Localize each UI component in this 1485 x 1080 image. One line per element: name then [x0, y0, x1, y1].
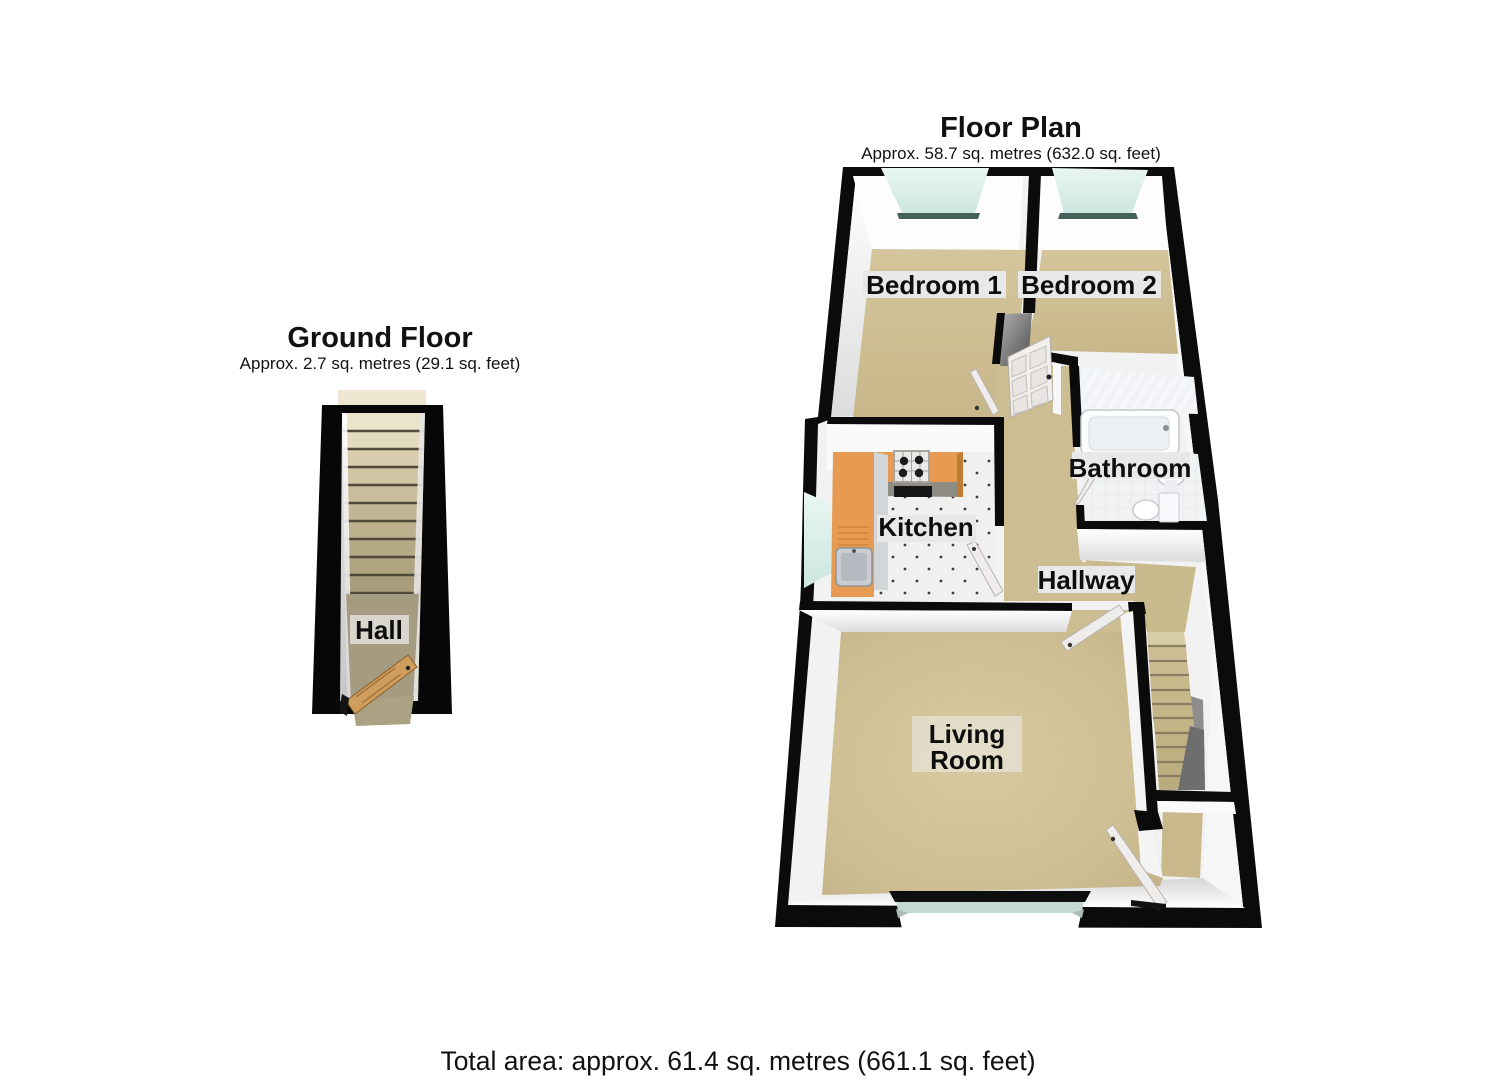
svg-text:Kitchen: Kitchen	[878, 512, 973, 542]
svg-text:Total area: approx. 61.4 sq. m: Total area: approx. 61.4 sq. metres (661…	[440, 1046, 1035, 1076]
svg-text:Hallway: Hallway	[1038, 565, 1135, 595]
svg-text:Approx. 2.7 sq. metres (29.1 s: Approx. 2.7 sq. metres (29.1 sq. feet)	[240, 354, 521, 373]
svg-text:Bedroom 1: Bedroom 1	[866, 270, 1002, 300]
svg-text:Hall: Hall	[355, 615, 403, 645]
svg-text:Approx. 58.7 sq. metres (632.0: Approx. 58.7 sq. metres (632.0 sq. feet)	[861, 144, 1161, 163]
svg-text:Floor Plan: Floor Plan	[940, 112, 1082, 144]
svg-text:Room: Room	[930, 745, 1004, 775]
svg-text:Bedroom 2: Bedroom 2	[1021, 270, 1157, 300]
svg-text:Ground Floor: Ground Floor	[287, 322, 472, 354]
svg-text:Bathroom: Bathroom	[1069, 453, 1192, 483]
